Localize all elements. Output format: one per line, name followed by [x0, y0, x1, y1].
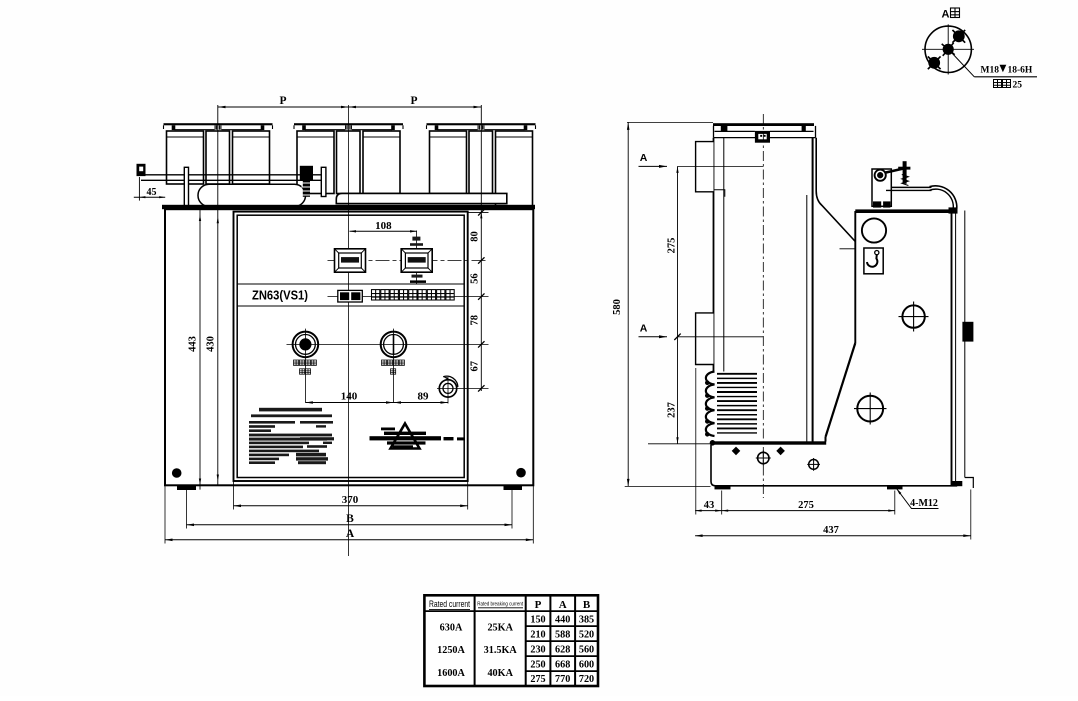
svg-text:B: B	[346, 513, 354, 525]
svg-text:Rated current: Rated current	[429, 599, 470, 609]
svg-text:40KA: 40KA	[487, 668, 513, 679]
svg-text:150: 150	[530, 614, 545, 625]
svg-text:770: 770	[555, 674, 570, 685]
svg-text:A: A	[942, 9, 950, 21]
svg-text:78: 78	[470, 315, 481, 326]
svg-text:25KA: 25KA	[487, 622, 513, 633]
svg-text:230: 230	[530, 644, 545, 655]
svg-text:M18: M18	[981, 65, 1000, 75]
svg-text:Rated breaking current: Rated breaking current	[477, 602, 523, 608]
svg-text:A: A	[559, 599, 567, 611]
svg-text:ZN63(VS1): ZN63(VS1)	[252, 288, 308, 303]
svg-text:25: 25	[1013, 80, 1023, 90]
svg-text:520: 520	[579, 629, 594, 640]
svg-text:1600A: 1600A	[437, 668, 465, 679]
svg-text:628: 628	[555, 644, 570, 655]
svg-text:370: 370	[342, 494, 359, 506]
svg-text:237: 237	[666, 402, 677, 418]
svg-text:A: A	[640, 323, 648, 335]
svg-text:430: 430	[206, 336, 217, 352]
svg-text:4-M12: 4-M12	[910, 498, 938, 509]
svg-text:1250A: 1250A	[437, 645, 465, 656]
svg-text:443: 443	[188, 336, 199, 352]
svg-text:A: A	[640, 152, 648, 164]
svg-text:720: 720	[579, 674, 594, 685]
svg-text:668: 668	[555, 659, 570, 670]
svg-text:67: 67	[470, 361, 481, 372]
svg-text:210: 210	[530, 629, 545, 640]
svg-text:31.5KA: 31.5KA	[484, 645, 518, 656]
svg-text:437: 437	[823, 525, 839, 536]
svg-text:B: B	[583, 599, 591, 611]
svg-text:56: 56	[470, 273, 481, 284]
svg-text:45: 45	[147, 187, 157, 198]
svg-text:275: 275	[666, 238, 677, 254]
svg-text:43: 43	[704, 500, 715, 511]
svg-text:580: 580	[612, 299, 623, 315]
svg-text:560: 560	[579, 644, 594, 655]
svg-text:80: 80	[470, 231, 481, 242]
svg-text:275: 275	[798, 500, 814, 511]
svg-text:89: 89	[418, 391, 430, 403]
svg-text:630A: 630A	[440, 622, 463, 633]
svg-text:385: 385	[579, 614, 594, 625]
svg-text:P: P	[279, 95, 286, 107]
svg-text:600: 600	[579, 659, 594, 670]
svg-text:108: 108	[375, 220, 392, 232]
svg-text:18-6H: 18-6H	[1008, 65, 1033, 75]
svg-text:588: 588	[555, 629, 570, 640]
svg-text:440: 440	[555, 614, 570, 625]
svg-text:140: 140	[341, 391, 358, 403]
svg-text:P: P	[410, 95, 417, 107]
svg-text:A: A	[346, 528, 355, 540]
svg-text:P: P	[535, 599, 542, 611]
svg-text:250: 250	[530, 659, 545, 670]
svg-text:275: 275	[530, 674, 545, 685]
